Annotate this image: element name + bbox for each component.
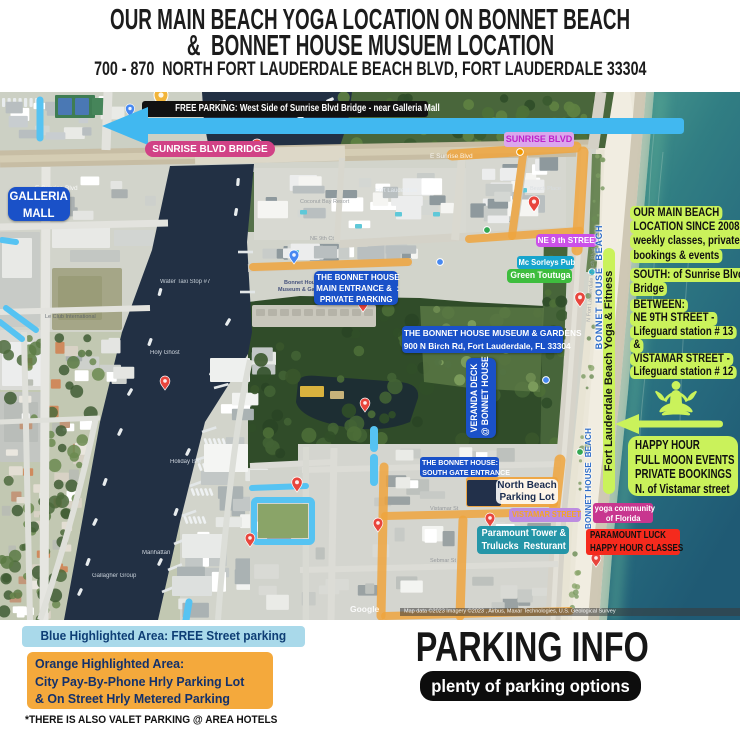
svg-text:E Sunrise Blvd: E Sunrise Blvd: [430, 153, 473, 160]
svg-text:Map data ©2023 Imagery ©2023: Map data ©2023 Imagery ©2023 , Airbus, M…: [404, 608, 616, 615]
svg-text:Holiday Isle: Holiday Isle: [170, 459, 202, 465]
svg-text:Le Club International: Le Club International: [45, 314, 96, 320]
svg-text:Beach Place: Beach Place: [530, 186, 561, 192]
svg-text:NE 9th Ct: NE 9th Ct: [310, 236, 334, 242]
svg-text:Water Taxi Stop #7: Water Taxi Stop #7: [160, 279, 211, 285]
svg-text:Fort Lauderdale: Fort Lauderdale: [375, 188, 418, 194]
svg-text:Coconut Bay Resort: Coconut Bay Resort: [300, 199, 350, 205]
svg-text:Google: Google: [350, 604, 380, 614]
svg-text:Gallagher Group: Gallagher Group: [92, 573, 137, 579]
svg-text:Manhattan: Manhattan: [142, 550, 170, 556]
svg-text:Holy Ghost: Holy Ghost: [150, 350, 180, 356]
svg-text:Sebmar St: Sebmar St: [430, 558, 456, 564]
svg-text:Vistamar St: Vistamar St: [430, 506, 459, 512]
